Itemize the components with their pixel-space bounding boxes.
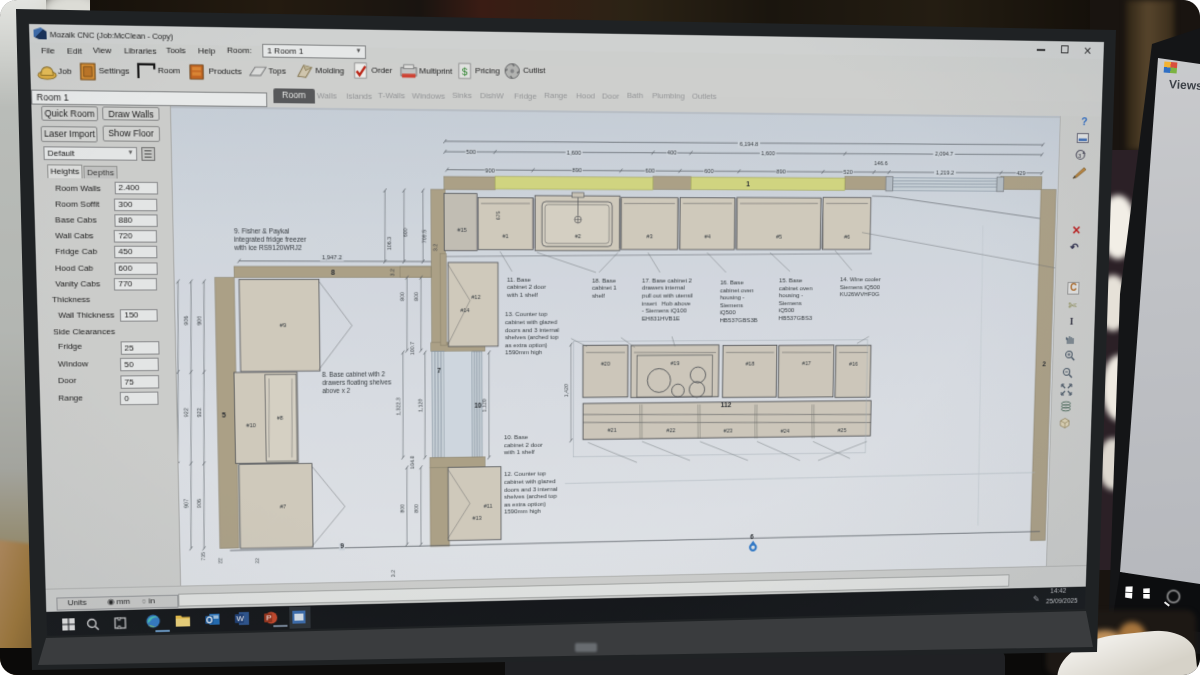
svg-text:2,094.7: 2,094.7 [935, 151, 954, 158]
svg-text:8: 8 [331, 267, 335, 276]
svg-text:922: 922 [184, 407, 190, 416]
svg-text:5: 5 [222, 410, 226, 419]
svg-text:100.7: 100.7 [410, 341, 416, 354]
svg-text:#23: #23 [724, 428, 734, 434]
svg-text:#6: #6 [844, 234, 851, 240]
svg-text:#12: #12 [471, 295, 481, 301]
svg-text:#7: #7 [280, 504, 287, 510]
svg-text:10: 10 [474, 402, 481, 409]
svg-text:3: 3 [1078, 153, 1082, 159]
svg-text:#1: #1 [502, 234, 509, 240]
svg-text:$: $ [462, 67, 469, 79]
svg-text:2: 2 [1042, 360, 1046, 368]
svg-text:6: 6 [750, 534, 754, 540]
svg-text:1,120: 1,120 [418, 398, 424, 411]
svg-text:22: 22 [218, 557, 224, 563]
svg-text:890: 890 [572, 167, 582, 174]
svg-text:906: 906 [197, 498, 203, 508]
svg-text:1,219.2: 1,219.2 [936, 170, 955, 177]
svg-text:#18: #18 [745, 361, 755, 367]
svg-text:#15: #15 [457, 227, 467, 233]
svg-text:W: W [236, 614, 245, 623]
svg-text:1,600: 1,600 [567, 149, 582, 156]
svg-text:9: 9 [340, 543, 344, 549]
svg-text:709.5: 709.5 [422, 229, 428, 243]
svg-text:146.6: 146.6 [874, 160, 888, 167]
svg-text:1,947.2: 1,947.2 [322, 254, 342, 261]
svg-text:1,600: 1,600 [761, 150, 776, 157]
svg-text:429: 429 [1016, 170, 1026, 176]
svg-text:#19: #19 [670, 361, 680, 367]
svg-text:800: 800 [414, 292, 420, 301]
svg-text:3.2: 3.2 [391, 569, 397, 576]
svg-text:6,194.8: 6,194.8 [740, 141, 759, 148]
svg-text:#9: #9 [280, 323, 287, 329]
svg-text:600: 600 [645, 168, 655, 175]
svg-text:#20: #20 [601, 361, 611, 367]
svg-text:1,120: 1,120 [482, 398, 488, 411]
svg-text:#4: #4 [704, 234, 711, 240]
svg-text:#22: #22 [666, 428, 676, 434]
svg-text:890: 890 [776, 169, 786, 176]
svg-text:1,322.3: 1,322.3 [396, 397, 402, 415]
svg-text:#10: #10 [246, 423, 256, 429]
svg-text:#13: #13 [472, 515, 482, 521]
svg-text:907: 907 [184, 498, 190, 507]
svg-text:#16: #16 [849, 361, 858, 366]
svg-text:900: 900 [485, 167, 495, 174]
svg-text:500: 500 [466, 148, 476, 155]
svg-text:#24: #24 [781, 428, 790, 434]
svg-text:#14: #14 [460, 308, 470, 314]
svg-text:520: 520 [843, 169, 853, 176]
svg-text:922: 922 [197, 407, 203, 416]
svg-text:106.3: 106.3 [387, 236, 393, 250]
svg-text:600: 600 [704, 168, 714, 175]
svg-text:906: 906 [197, 315, 203, 325]
svg-text:800: 800 [400, 504, 406, 513]
svg-text:#25: #25 [838, 428, 847, 433]
svg-text:400: 400 [667, 150, 677, 157]
svg-text:#8: #8 [277, 415, 283, 421]
svg-text:#11: #11 [484, 503, 493, 509]
svg-text:800: 800 [414, 504, 420, 513]
svg-text:735: 735 [201, 552, 207, 560]
svg-text:3.2: 3.2 [433, 243, 439, 251]
svg-text:22: 22 [255, 557, 261, 563]
svg-text:P: P [266, 614, 272, 623]
svg-text:3.2: 3.2 [390, 268, 396, 276]
svg-text:7: 7 [437, 367, 441, 374]
svg-text:600: 600 [403, 228, 409, 237]
svg-text:104.8: 104.8 [410, 455, 416, 468]
svg-text:800: 800 [400, 292, 406, 301]
svg-text:#3: #3 [646, 234, 653, 240]
svg-text:#17: #17 [802, 361, 811, 367]
svg-text:112: 112 [721, 401, 732, 409]
svg-text:906: 906 [184, 315, 190, 325]
svg-text:675: 675 [496, 210, 502, 219]
svg-text:14. Wine coolerSiemens iQ500KU: 14. Wine coolerSiemens iQ500KU26WVHF0G [840, 276, 882, 297]
svg-text:#21: #21 [608, 428, 618, 434]
svg-text:1,420: 1,420 [564, 383, 569, 396]
svg-text:#5: #5 [776, 234, 783, 240]
svg-text:1: 1 [746, 180, 750, 188]
svg-text:#2: #2 [575, 234, 582, 240]
